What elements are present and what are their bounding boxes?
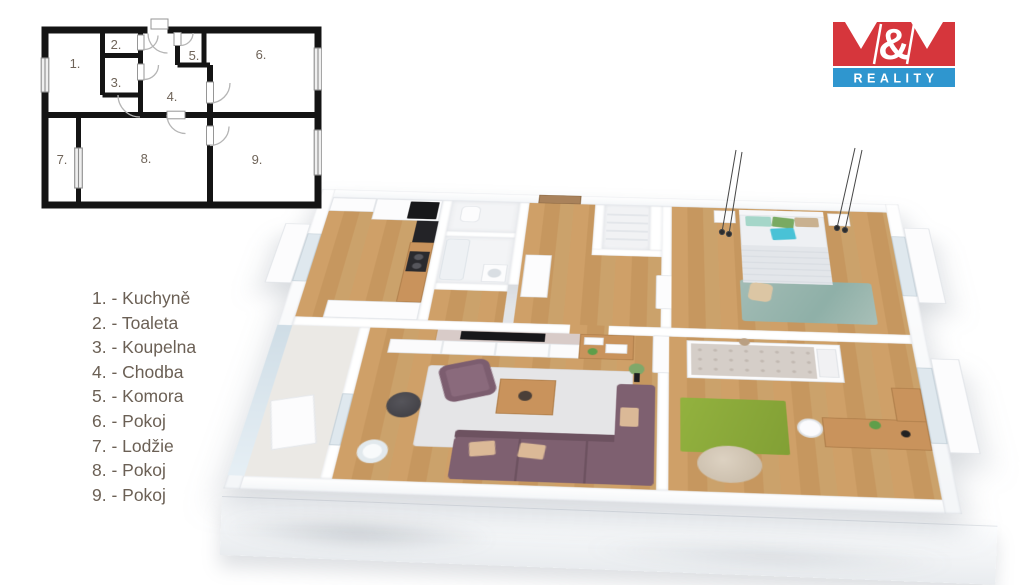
sofa-pillow-3	[620, 407, 639, 427]
bed-blanket	[741, 245, 833, 285]
legend-item-4: 4. - Chodba	[92, 360, 196, 385]
toilet-fixture	[459, 206, 481, 222]
legend-item-1: 1. - Kuchyně	[92, 286, 196, 311]
entry-door	[538, 195, 581, 204]
apartment-model	[223, 189, 962, 514]
kitchen-counter-bottom	[323, 300, 421, 320]
sofa-pillow-1	[469, 440, 496, 456]
legend-item-2: 2. - Toaleta	[92, 311, 196, 336]
living-plant-vase	[634, 373, 640, 382]
teddy-bear	[739, 338, 750, 346]
plan-num-5: 5.	[189, 48, 200, 63]
wall-hall-bedroom	[661, 206, 672, 327]
room-legend: 1. - Kuchyně 2. - Toaleta 3. - Koupelna …	[92, 286, 196, 507]
sofa-pillow-2	[517, 442, 546, 459]
plan-num-7: 7.	[57, 152, 68, 167]
plan-num-4: 4.	[167, 89, 178, 104]
plan-num-8: 8.	[141, 151, 152, 166]
pillow-blue	[770, 228, 797, 240]
washing-machine	[481, 264, 508, 282]
mm-reality-logo: & REALITY	[832, 21, 956, 88]
loggia-window-panel	[270, 394, 317, 450]
kitchen-counter-left	[329, 198, 377, 212]
plan-num-3: 3.	[111, 75, 122, 90]
legend-item-6: 6. - Pokoj	[92, 409, 196, 434]
floorplan-2d: 1. 2. 3. 4. 5. 6. 7. 8. 9.	[40, 18, 322, 210]
kitchen-fridge	[412, 221, 439, 243]
wall-komora-right	[649, 206, 662, 250]
kitchen-ovens	[407, 201, 440, 219]
legend-item-8: 8. - Pokoj	[92, 458, 196, 483]
nightstand-left	[714, 210, 736, 223]
nightstand-right	[827, 213, 851, 226]
logo-reality-text: REALITY	[854, 72, 939, 86]
floor-passage	[428, 289, 507, 322]
bedroom-throw	[747, 281, 773, 302]
legend-item-3: 3. - Koupelna	[92, 335, 196, 360]
plan-num-1: 1.	[70, 56, 81, 71]
sofa-chaise	[612, 384, 655, 486]
legend-item-5: 5. - Komora	[92, 384, 196, 409]
plan-num-2: 2.	[111, 37, 122, 52]
kids-pillow	[816, 349, 840, 378]
plan-num-9: 9.	[252, 152, 263, 167]
floor-toilet	[446, 201, 520, 233]
hall-wardrobe	[520, 255, 552, 298]
legend-item-7: 7. - Lodžie	[92, 434, 196, 459]
pillow-tan	[794, 217, 819, 227]
kitchen-cooktop	[405, 251, 430, 272]
mm-reality-logo-svg: & REALITY	[832, 21, 956, 88]
kids-bedding	[691, 343, 817, 378]
komora-shelves	[605, 207, 648, 246]
logo-ampersand: &	[878, 21, 910, 69]
shelf-box-1	[584, 337, 604, 345]
plan-num-6: 6.	[256, 47, 267, 62]
legend-item-9: 9. - Pokoj	[92, 483, 196, 508]
shelf-box-2	[605, 344, 627, 354]
pillow-teal	[745, 216, 771, 227]
